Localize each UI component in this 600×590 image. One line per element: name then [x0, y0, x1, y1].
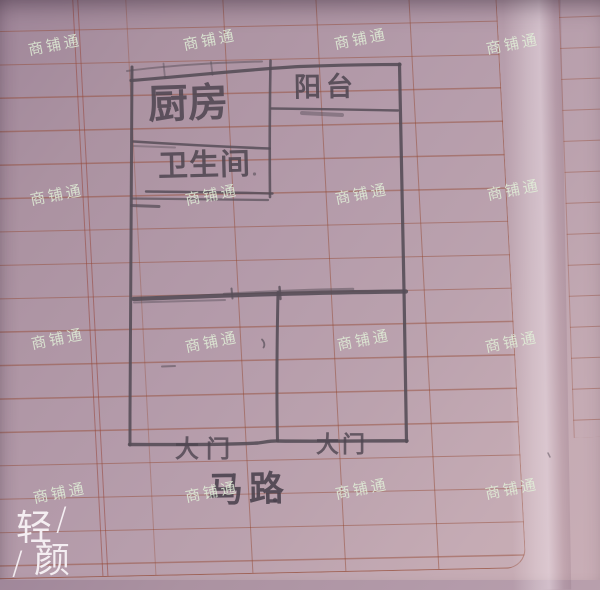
logo-char-bottom: 颜 — [34, 543, 70, 579]
wall-left — [130, 67, 132, 445]
balcony-label: 阳台 — [294, 73, 358, 101]
bathroom-label-dot — [253, 172, 256, 175]
kitchen-label: 厨房 — [147, 83, 228, 126]
wall-top-tick — [164, 64, 166, 79]
wall-right — [400, 64, 407, 442]
photo-scene: 厨房 阳台 卫生间 大门 大门 马路 商铺通商铺通商铺通商铺通商铺通商铺通商铺通… — [0, 0, 600, 580]
road-label: 马路 — [208, 472, 291, 508]
stray-pencil-dash — [162, 366, 175, 367]
main-door-label-right: 大门 — [316, 434, 368, 457]
main-door-label-left: 大门 — [175, 437, 237, 461]
balcony-wall-smudge — [302, 113, 342, 115]
stray-pencil-speck — [548, 453, 550, 457]
divider-tick — [232, 289, 233, 299]
kitchen-balcony-divider-wall — [270, 61, 271, 198]
logo-slash-bottom: / — [12, 547, 23, 579]
bathroom-wall-tick — [132, 206, 160, 207]
kitchen-wall-sketch-stroke — [134, 146, 175, 148]
notebook-photo: { "floor_plan": { "rooms": [ {"id": "kit… — [0, 0, 600, 580]
bedroom-divider-wall — [277, 293, 278, 442]
logo-slash-top: / — [56, 503, 67, 535]
bathroom-bottom-wall-2 — [133, 199, 269, 201]
bathroom-label: 卫生间 — [158, 150, 252, 182]
qingyan-camera-logo: 轻 / 颜 / — [8, 503, 92, 583]
divider-tick — [280, 287, 281, 299]
stray-pencil-squiggle — [262, 340, 264, 348]
bathroom-bottom-wall — [146, 192, 273, 194]
balcony-bottom-wall — [272, 109, 399, 111]
